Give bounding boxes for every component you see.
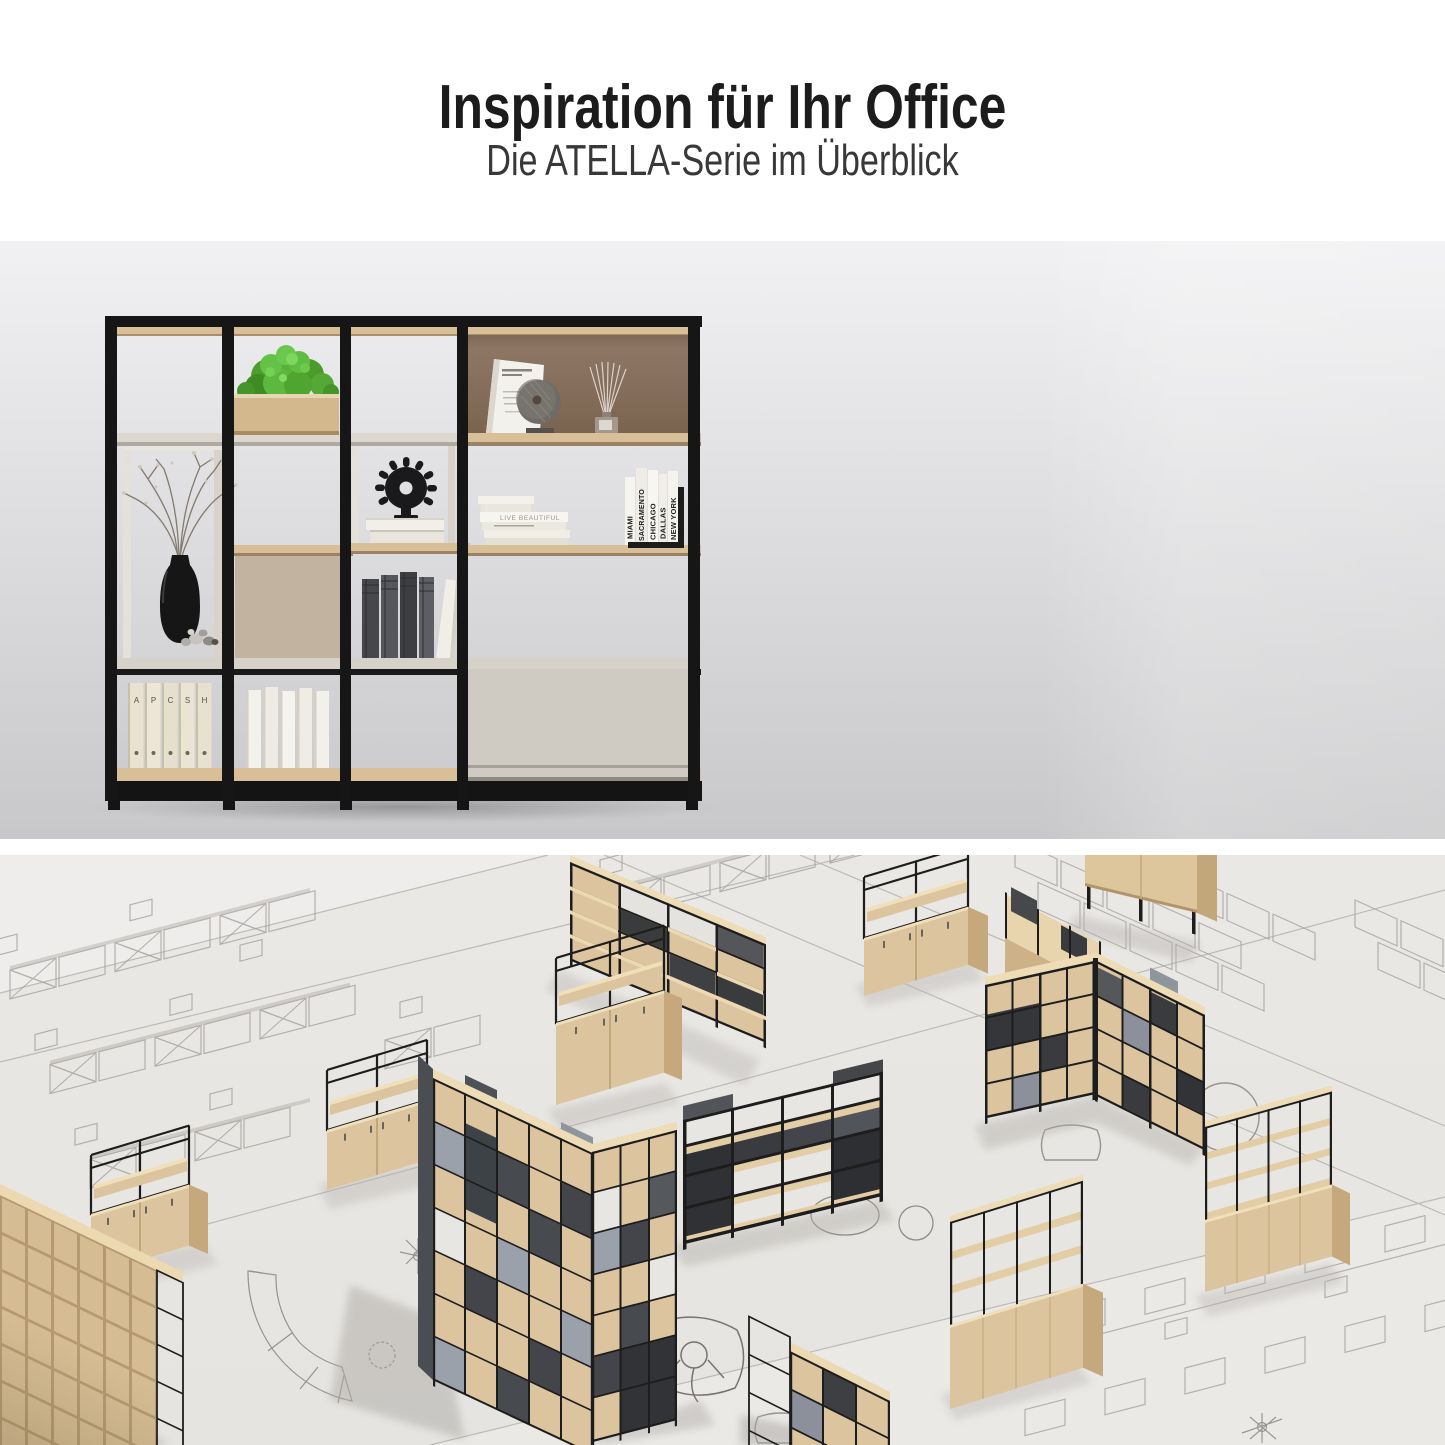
svg-text:H: H bbox=[202, 696, 208, 705]
svg-text:CHICAGO: CHICAGO bbox=[649, 503, 658, 540]
svg-text:P: P bbox=[151, 696, 156, 705]
svg-text:NEW YORK: NEW YORK bbox=[669, 497, 678, 540]
svg-text:C: C bbox=[168, 696, 174, 705]
svg-text:A: A bbox=[134, 696, 140, 705]
svg-text:SACRAMENTO: SACRAMENTO bbox=[639, 489, 646, 541]
svg-text:S: S bbox=[185, 696, 190, 705]
svg-text:LIVE BEAUTIFUL: LIVE BEAUTIFUL bbox=[500, 515, 560, 522]
svg-text:DALLAS: DALLAS bbox=[659, 507, 668, 539]
svg-text:MIAMI: MIAMI bbox=[626, 516, 635, 539]
